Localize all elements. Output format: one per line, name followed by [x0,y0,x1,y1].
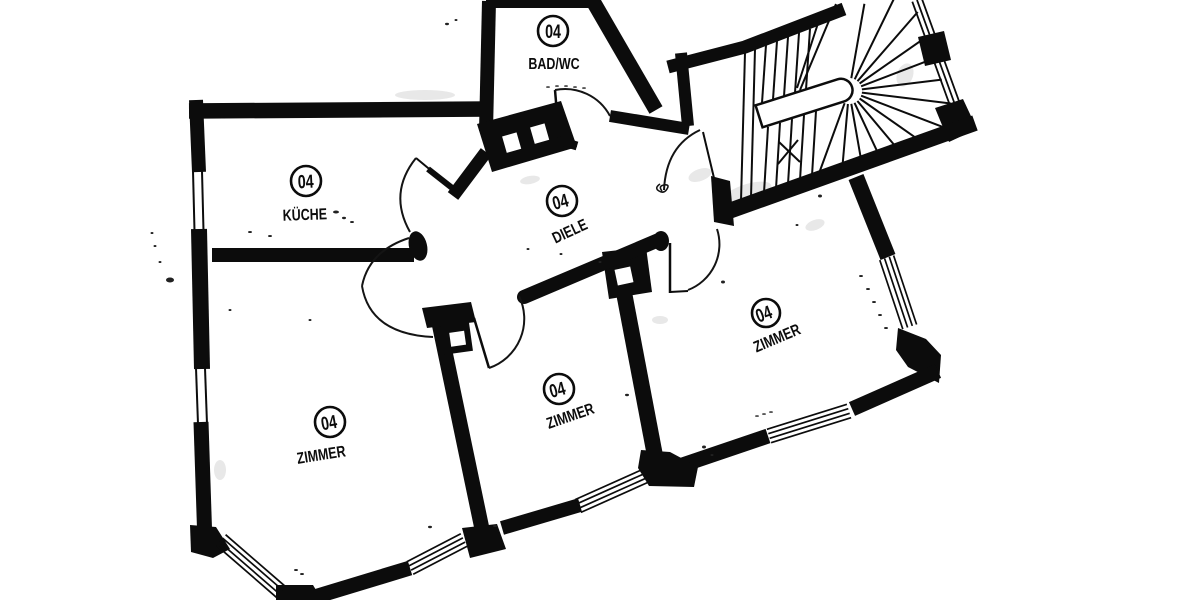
svg-text:04: 04 [297,171,315,193]
svg-text:04: 04 [545,21,561,42]
svg-text:BAD/WC: BAD/WC [528,56,579,74]
svg-text:KÜCHE: KÜCHE [282,205,327,225]
